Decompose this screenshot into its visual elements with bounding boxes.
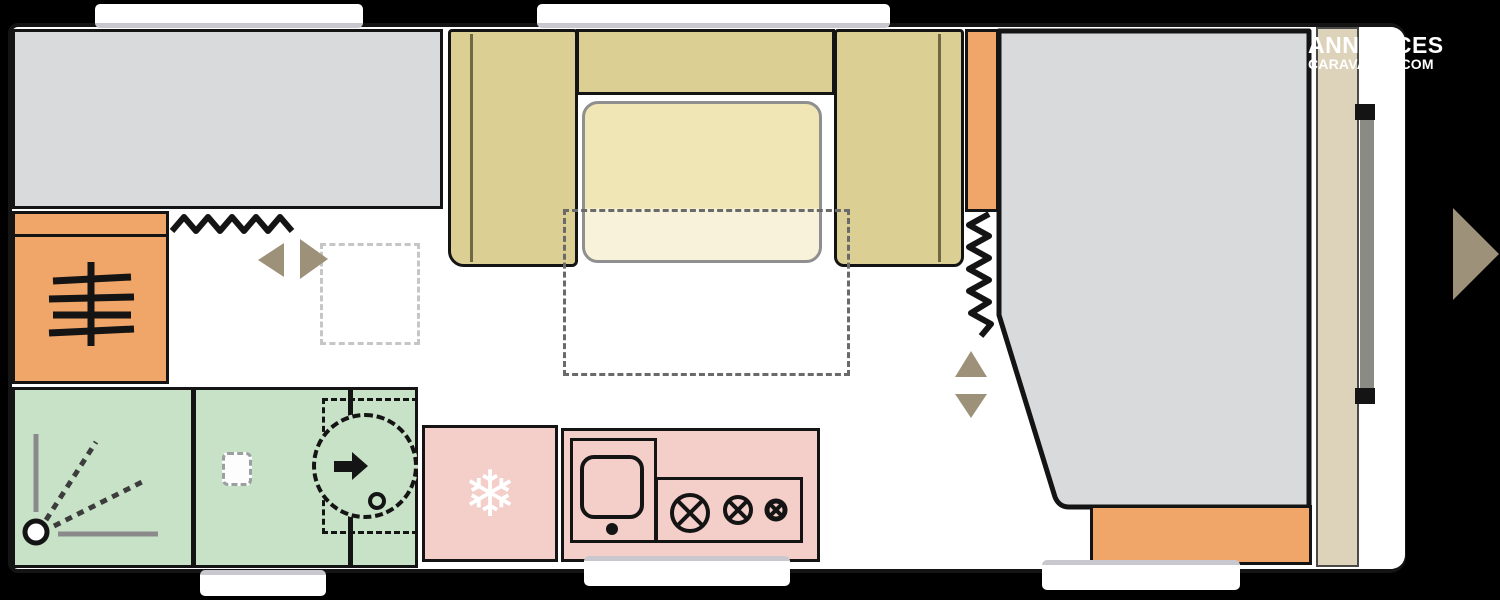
curtain-zigzag-horizontal-icon	[168, 210, 298, 238]
sink-icon	[580, 455, 644, 519]
curtain-zigzag-vertical-icon	[961, 210, 1001, 342]
dinette-bench-left	[448, 29, 578, 267]
sink-drain-icon	[606, 523, 618, 535]
rear-shelf-strip	[1316, 27, 1359, 567]
cabinet-shelf-line	[15, 234, 166, 237]
slide-arrow-left-icon	[258, 243, 284, 277]
basin-arrow-shaft	[334, 461, 354, 472]
window-bottom-right	[1042, 560, 1240, 590]
rear-island-bed	[993, 25, 1315, 513]
front-bed	[12, 29, 443, 209]
washroom-wall-1	[191, 390, 196, 565]
convertible-bed-outline	[563, 209, 850, 376]
heater-icon	[45, 258, 137, 350]
dinette-bench-back	[576, 29, 835, 95]
slide-arrow-right-icon	[300, 239, 328, 279]
fridge: ❄	[422, 425, 558, 562]
watermark-line2: CARAVANES.COM	[1308, 57, 1444, 72]
window-top-center	[537, 4, 890, 28]
rear-bed-sideboard	[1090, 505, 1312, 565]
dinette-bench-right	[834, 29, 964, 267]
door-hinge-bottom	[1355, 388, 1375, 404]
toilet-cassette-icon	[222, 452, 252, 486]
window-top-left	[95, 4, 363, 28]
overhead-locker-outline	[320, 243, 420, 345]
shower-icon	[20, 426, 165, 548]
window-bottom-center	[584, 556, 790, 586]
basin-arrow-icon	[352, 452, 368, 480]
floorplan-canvas: ❄	[0, 0, 1500, 600]
bench-backrest-line	[470, 34, 473, 262]
bed-lift-arrow-down-icon	[955, 394, 987, 418]
door-icon	[1360, 110, 1374, 398]
entry-arrow-icon	[1453, 208, 1499, 300]
stove	[655, 477, 803, 543]
watermark-line1: ANNONCES	[1308, 33, 1444, 57]
snowflake-icon: ❄	[463, 462, 517, 526]
bench-backrest-line	[938, 34, 941, 262]
bed-lift-arrow-up-icon	[955, 351, 987, 377]
watermark: ANNONCES CARAVANES.COM	[1308, 33, 1444, 72]
basin-tap-icon	[368, 492, 386, 510]
stove-burners-icon	[658, 480, 800, 540]
window-bottom-left	[200, 570, 326, 596]
door-hinge-top	[1355, 104, 1375, 120]
